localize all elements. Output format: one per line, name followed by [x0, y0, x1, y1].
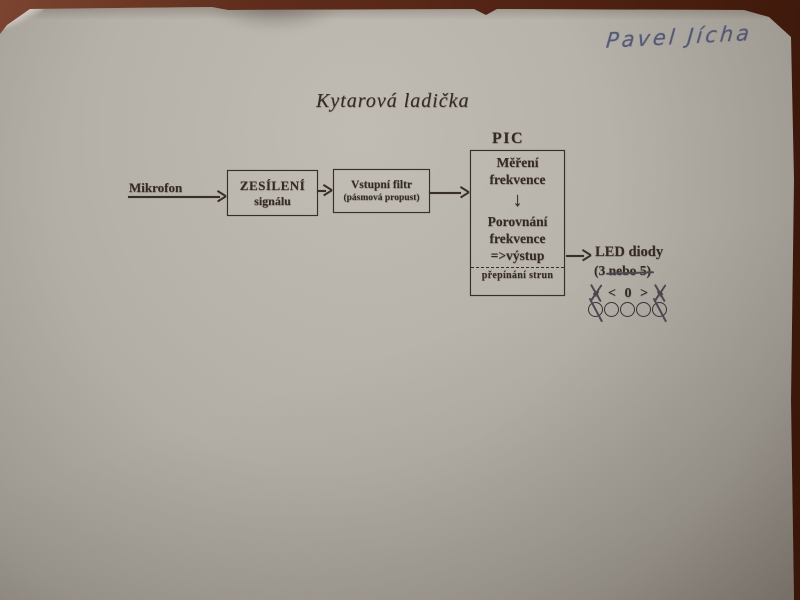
amplifier-box-line1: ZESÍLENÍ — [240, 178, 305, 194]
pic-compare-line1: Porovnání — [488, 213, 548, 230]
led-circle-icon — [652, 302, 667, 317]
pic-chip-label: PIC — [492, 130, 524, 148]
arrowhead-icon — [322, 184, 332, 196]
arrowhead-icon — [459, 186, 469, 198]
microphone-label: Mikrofon — [129, 180, 182, 196]
arrowhead-icon — [216, 190, 226, 202]
pic-compare-line3: =>výstup — [491, 247, 545, 264]
led-symbol: 0 — [622, 286, 634, 302]
amplifier-box: ZESÍLENÍ signálu — [227, 170, 318, 216]
pic-measure-line2: frekvence — [490, 171, 546, 188]
pic-compare-line2: frekvence — [490, 230, 546, 247]
pic-box: Měření frekvence ↓ Porovnání frekvence =… — [470, 150, 565, 296]
flow-arrow-line — [128, 196, 220, 198]
led-circles — [588, 302, 667, 317]
led-sublabel: (3 nebo 5) — [594, 263, 651, 279]
filter-box-line2: (pásmová propust) — [343, 192, 419, 205]
filter-box: Vstupní filtr (pásmová propust) — [333, 169, 430, 213]
filter-box-line1: Vstupní filtr — [351, 178, 412, 192]
pic-strings-label: přepínání strun — [482, 268, 553, 284]
led-symbol: < — [606, 286, 618, 302]
led-circle-icon — [620, 302, 635, 317]
led-circle-icon — [636, 302, 651, 317]
flow-arrow-line — [429, 192, 461, 194]
led-circle-icon — [604, 302, 619, 317]
led-sublabel-struck-text: nebo 5) — [609, 263, 651, 279]
led-symbol: > — [638, 286, 650, 302]
arrowhead-icon — [581, 249, 591, 261]
led-sublabel-prefix: (3 — [594, 263, 609, 278]
paper-sheet: Pavel Jícha Kytarová ladička Mikrofon ZE… — [0, 0, 800, 600]
photo-of-paper: Pavel Jícha Kytarová ladička Mikrofon ZE… — [0, 0, 800, 600]
amplifier-box-line2: signálu — [254, 194, 291, 209]
led-circle-icon — [588, 302, 603, 317]
paper-corner-curl — [0, 0, 46, 33]
led-label: LED diody — [595, 244, 663, 261]
pic-measure-line1: Měření — [497, 154, 539, 171]
down-arrow-icon: ↓ — [513, 188, 523, 213]
diagram-title: Kytarová ladička — [316, 90, 470, 113]
top-edge-shadow-smudge — [206, 0, 344, 32]
handwritten-author-name: Pavel Jícha — [605, 19, 787, 53]
